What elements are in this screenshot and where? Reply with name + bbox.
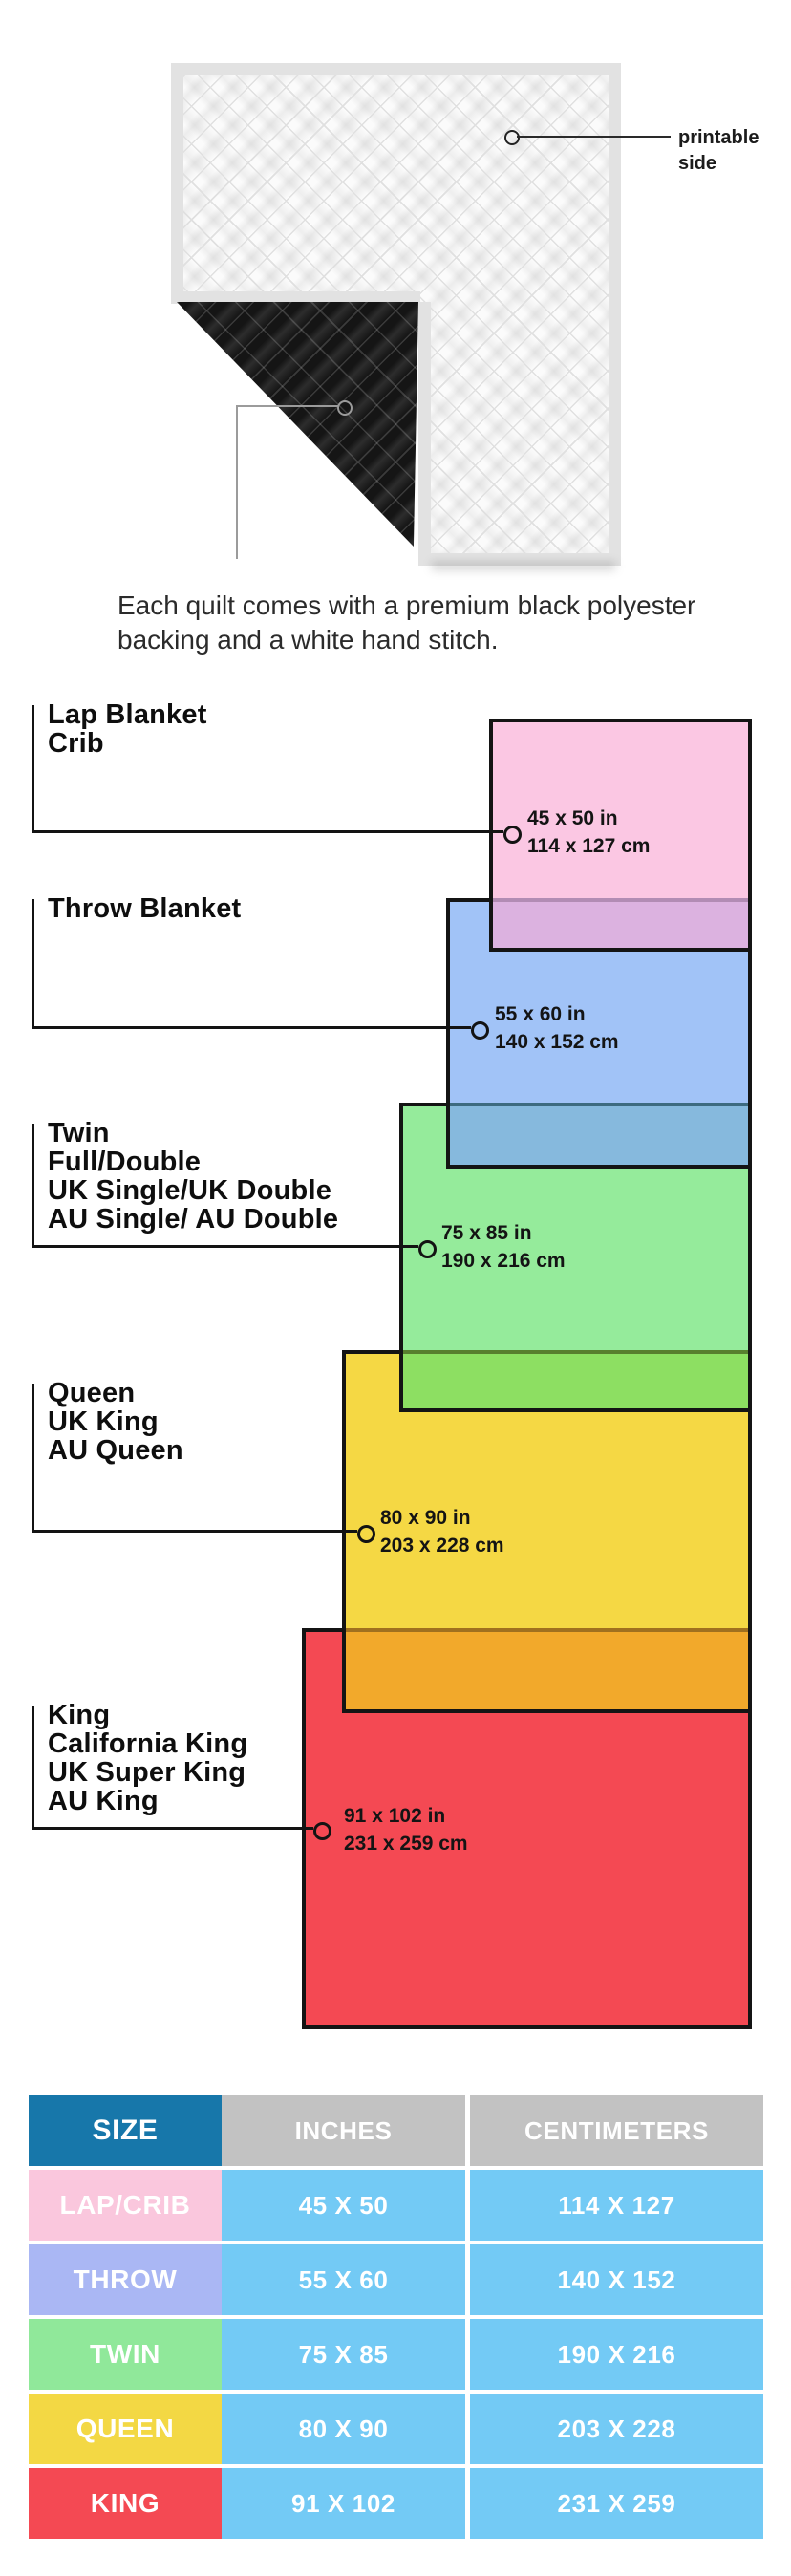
- connector-vertical-twin: [32, 1124, 34, 1248]
- connector-dot-throw-icon: [471, 1021, 489, 1040]
- connector-horizontal-king: [32, 1827, 313, 1830]
- dimension-centimeters: 190 x 216 cm: [441, 1247, 566, 1275]
- muted-border-queen-top: [403, 1350, 748, 1354]
- table-cell-size: KING: [29, 2468, 222, 2539]
- size-label-line: California King: [48, 1729, 247, 1758]
- dimension-centimeters: 140 x 152 cm: [495, 1028, 619, 1056]
- connector-vertical-lap: [32, 705, 34, 833]
- size-label-line: UK Super King: [48, 1758, 247, 1787]
- table-cell-size: THROW: [29, 2244, 222, 2315]
- size-label-line: Full/Double: [48, 1148, 338, 1176]
- quilt-fold-binding-edge: [418, 302, 431, 566]
- table-row-lap-crib: LAP/CRIB 45 X 50 114 X 127: [29, 2170, 763, 2241]
- table-cell-centimeters: 190 X 216: [470, 2319, 763, 2390]
- dimension-inches: 75 x 85 in: [441, 1219, 566, 1247]
- overlap-lap-throw: [493, 902, 748, 948]
- connector-horizontal-twin: [32, 1245, 418, 1248]
- table-cell-centimeters: 114 X 127: [470, 2170, 763, 2241]
- overlap-twin-queen: [403, 1354, 748, 1408]
- connector-dot-lap-icon: [503, 826, 522, 844]
- dimension-inches: 45 x 50 in: [527, 805, 650, 832]
- table-header-inches: INCHES: [222, 2095, 465, 2166]
- table-header-row: SIZE INCHES CENTIMETERS: [29, 2095, 763, 2166]
- size-label-line: Lap Blanket: [48, 700, 207, 729]
- quilt-black-backing-fold: [177, 302, 418, 547]
- table-cell-inches: 55 X 60: [222, 2244, 465, 2315]
- overlap-throw-twin: [450, 1106, 748, 1165]
- dimension-centimeters: 231 x 259 cm: [344, 1830, 468, 1857]
- dimensions-king: 91 x 102 in 231 x 259 cm: [344, 1802, 468, 1857]
- backing-callout-line-horizontal: [237, 405, 338, 407]
- connector-vertical-queen: [32, 1384, 34, 1533]
- backing-callout-line-vertical: [236, 405, 238, 559]
- table-row-king: KING 91 X 102 231 X 259: [29, 2468, 763, 2539]
- size-label-line: UK Single/UK Double: [48, 1176, 338, 1205]
- table-cell-size: QUEEN: [29, 2394, 222, 2464]
- table-row-throw: THROW 55 X 60 140 X 152: [29, 2244, 763, 2315]
- table-cell-inches: 91 X 102: [222, 2468, 465, 2539]
- connector-dot-twin-icon: [418, 1240, 437, 1258]
- size-label-line: AU Queen: [48, 1436, 183, 1465]
- table-cell-centimeters: 203 X 228: [470, 2394, 763, 2464]
- overlap-queen-king: [346, 1632, 748, 1709]
- table-cell-size: LAP/CRIB: [29, 2170, 222, 2241]
- dimensions-queen: 80 x 90 in 203 x 228 cm: [380, 1504, 504, 1559]
- size-label-line: Queen: [48, 1379, 183, 1407]
- table-cell-inches: 75 X 85: [222, 2319, 465, 2390]
- size-label-line: Twin: [48, 1119, 338, 1148]
- dimension-inches: 91 x 102 in: [344, 1802, 468, 1830]
- backing-caption-line1: Each quilt comes with a premium black po…: [118, 589, 695, 623]
- table-row-queen: QUEEN 80 X 90 203 X 228: [29, 2394, 763, 2464]
- size-label-queen: Queen UK King AU Queen: [48, 1379, 183, 1465]
- table-cell-centimeters: 140 X 152: [470, 2244, 763, 2315]
- dimension-inches: 55 x 60 in: [495, 1000, 619, 1028]
- printable-side-label-line2: side: [678, 151, 759, 177]
- size-label-line: AU King: [48, 1787, 247, 1815]
- size-label-line: AU Single/ AU Double: [48, 1205, 338, 1234]
- connector-dot-king-icon: [313, 1822, 331, 1840]
- printable-side-label-line1: printable: [678, 125, 759, 151]
- size-label-throw: Throw Blanket: [48, 894, 241, 923]
- size-label-line: King: [48, 1701, 247, 1729]
- table-cell-inches: 80 X 90: [222, 2394, 465, 2464]
- size-label-lap-crib: Lap Blanket Crib: [48, 700, 207, 758]
- connector-dot-queen-icon: [357, 1525, 375, 1543]
- table-row-twin: TWIN 75 X 85 190 X 216: [29, 2319, 763, 2390]
- printable-side-marker-icon: [504, 130, 520, 145]
- connector-horizontal-throw: [32, 1026, 471, 1029]
- backing-caption-line2: backing and a white hand stitch.: [118, 623, 695, 657]
- size-label-line: Throw Blanket: [48, 894, 241, 923]
- dimensions-throw: 55 x 60 in 140 x 152 cm: [495, 1000, 619, 1056]
- size-label-line: UK King: [48, 1407, 183, 1436]
- dimensions-twin: 75 x 85 in 190 x 216 cm: [441, 1219, 566, 1275]
- dimension-centimeters: 114 x 127 cm: [527, 832, 650, 860]
- dimension-inches: 80 x 90 in: [380, 1504, 504, 1532]
- table-header-size: SIZE: [29, 2095, 222, 2166]
- connector-vertical-king: [32, 1706, 34, 1830]
- backing-caption: Each quilt comes with a premium black po…: [118, 589, 695, 657]
- printable-side-callout-line: [517, 136, 671, 138]
- dimensions-lap-crib: 45 x 50 in 114 x 127 cm: [527, 805, 650, 860]
- infographic-page: printable side Each quilt comes with a p…: [0, 0, 791, 2576]
- muted-border-king-top: [346, 1628, 748, 1632]
- quilt-shadow: [432, 563, 615, 569]
- backing-marker-icon: [337, 400, 353, 416]
- size-table: SIZE INCHES CENTIMETERS LAP/CRIB 45 X 50…: [29, 2095, 763, 2543]
- connector-horizontal-queen: [32, 1530, 357, 1533]
- muted-border-twin-top: [450, 1103, 748, 1106]
- muted-border-throw-top: [493, 898, 748, 902]
- table-cell-centimeters: 231 X 259: [470, 2468, 763, 2539]
- connector-horizontal-lap: [32, 830, 503, 833]
- size-label-twin: Twin Full/Double UK Single/UK Double AU …: [48, 1119, 338, 1234]
- table-cell-size: TWIN: [29, 2319, 222, 2390]
- table-header-centimeters: CENTIMETERS: [470, 2095, 763, 2166]
- table-cell-inches: 45 X 50: [222, 2170, 465, 2241]
- size-label-line: Crib: [48, 729, 207, 758]
- size-label-king: King California King UK Super King AU Ki…: [48, 1701, 247, 1815]
- dimension-centimeters: 203 x 228 cm: [380, 1532, 504, 1559]
- connector-vertical-throw: [32, 899, 34, 1029]
- printable-side-label: printable side: [678, 125, 759, 177]
